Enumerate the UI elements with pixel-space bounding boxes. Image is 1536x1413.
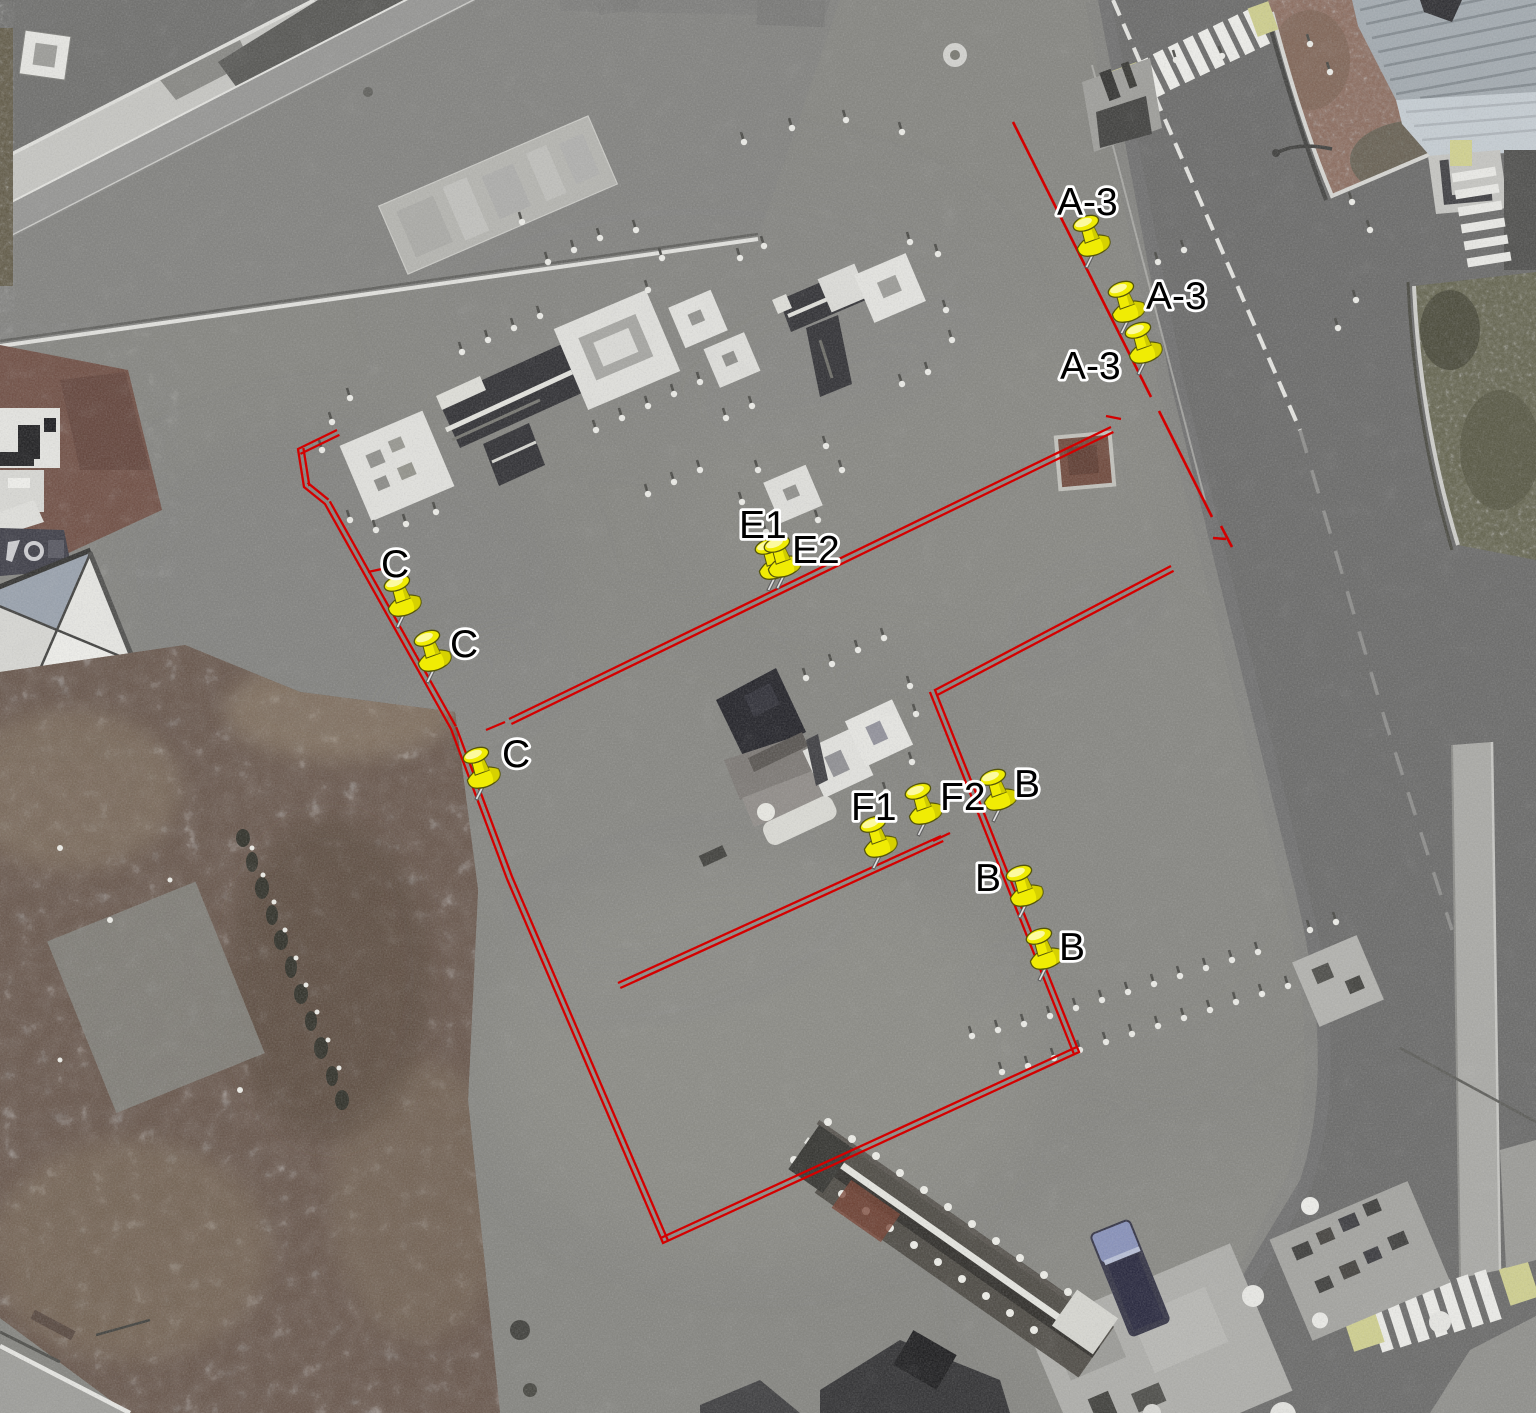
svg-text:F2: F2 (940, 776, 986, 819)
svg-text:E1: E1 (739, 504, 787, 547)
svg-text:E2: E2 (792, 529, 840, 572)
svg-text:C: C (450, 623, 478, 666)
svg-text:B: B (975, 857, 1001, 900)
svg-text:F1: F1 (851, 786, 897, 829)
svg-text:B: B (1014, 763, 1040, 806)
svg-text:C: C (502, 733, 530, 776)
svg-text:A-3: A-3 (1057, 181, 1118, 224)
svg-text:B: B (1059, 926, 1085, 969)
svg-text:C: C (381, 543, 409, 586)
svg-text:A-3: A-3 (1060, 345, 1121, 388)
svg-text:A-3: A-3 (1146, 275, 1207, 318)
